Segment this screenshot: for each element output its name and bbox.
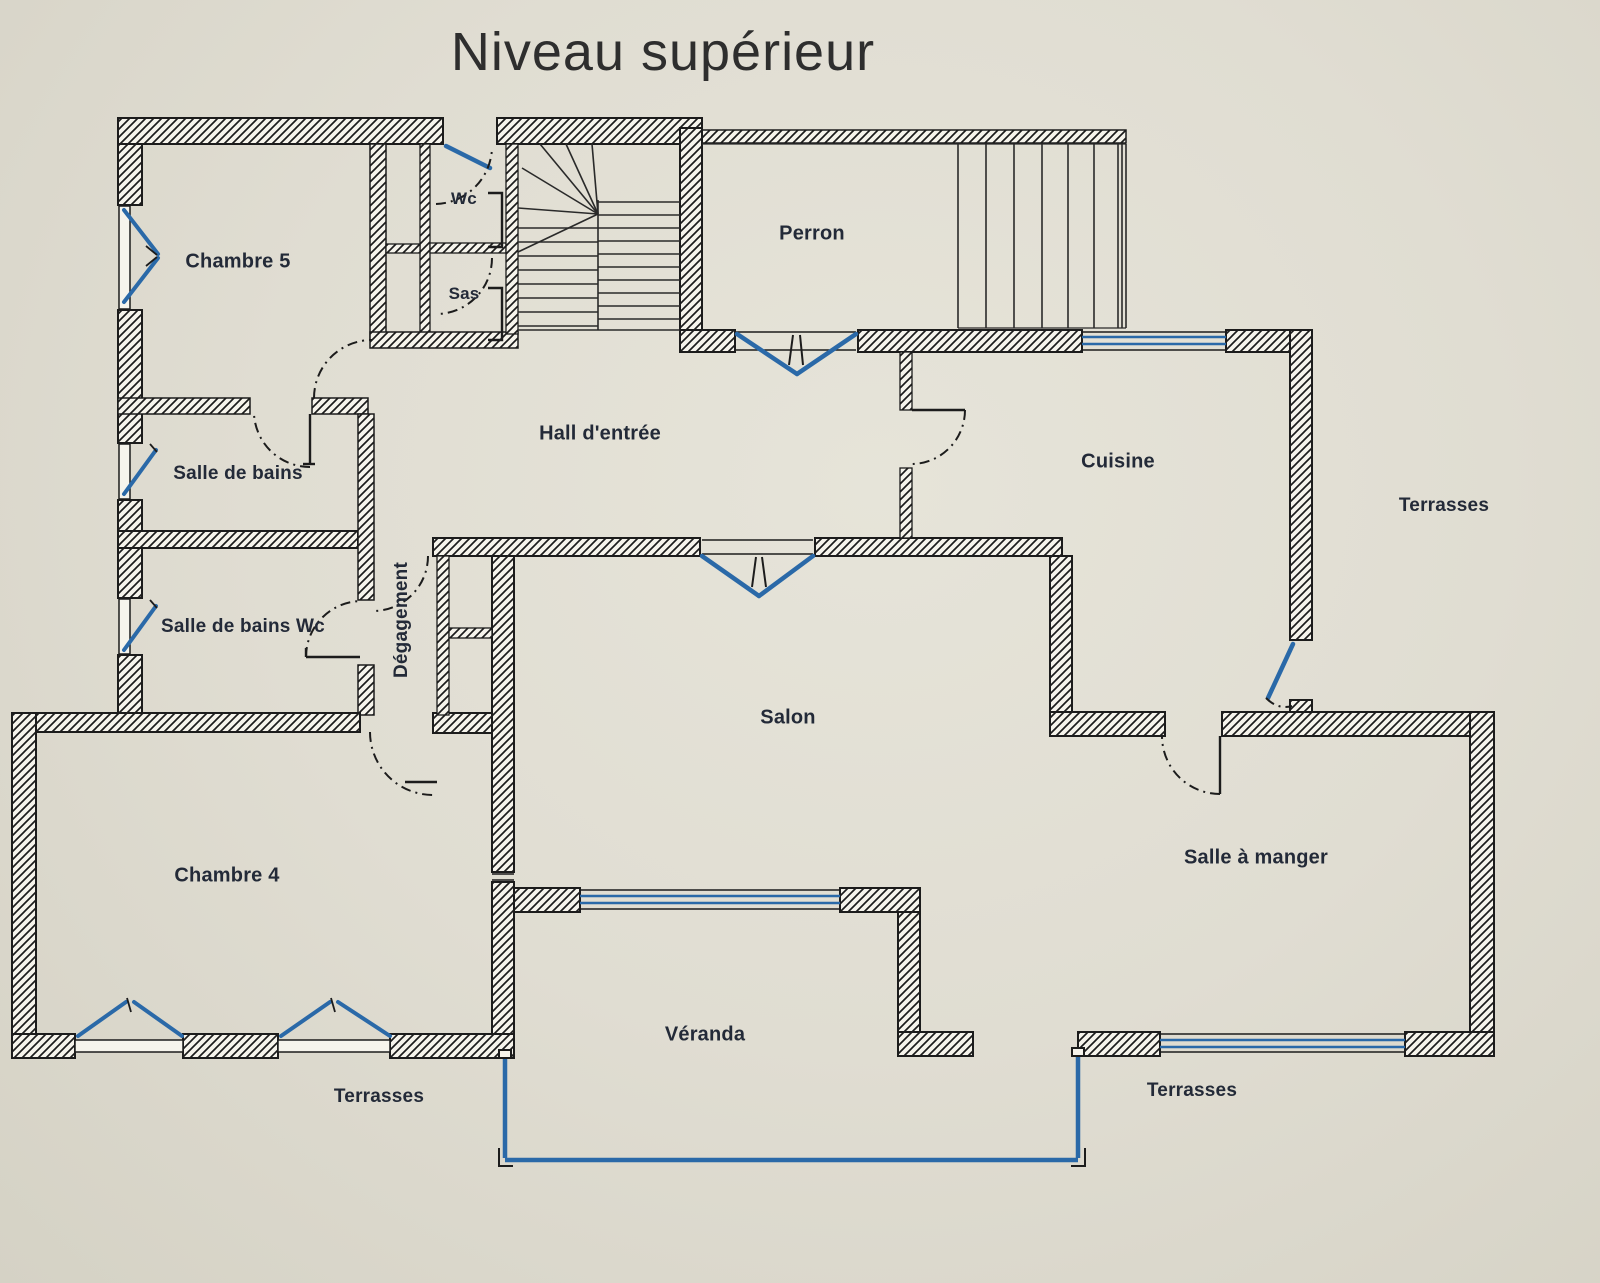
room-label-degagement: Dégagement bbox=[391, 562, 413, 678]
room-label-chambre-4: Chambre 4 bbox=[174, 865, 279, 888]
page-title: Niveau supérieur bbox=[451, 21, 875, 83]
floor-plan-page: Niveau supérieur Chambre 5 Wc Sas Perron… bbox=[0, 0, 1600, 1283]
perron-exterior-steps bbox=[702, 144, 1126, 328]
room-label-salle-a-manger: Salle à manger bbox=[1184, 847, 1328, 870]
room-label-salle-de-bains-wc: Salle de bains Wc bbox=[161, 616, 325, 638]
room-label-cuisine: Cuisine bbox=[1081, 451, 1155, 474]
room-label-hall-entree: Hall d'entrée bbox=[539, 423, 661, 446]
room-label-veranda: Véranda bbox=[665, 1024, 745, 1047]
room-label-sas: Sas bbox=[449, 284, 480, 304]
room-label-perron: Perron bbox=[779, 223, 845, 246]
area-label-terrasses-bottom-right: Terrasses bbox=[1147, 1080, 1237, 1102]
room-label-salle-de-bains: Salle de bains bbox=[173, 463, 303, 485]
doors bbox=[254, 146, 1293, 880]
room-label-chambre-5: Chambre 5 bbox=[185, 251, 290, 274]
area-label-terrasses-right: Terrasses bbox=[1399, 495, 1489, 517]
room-label-salon: Salon bbox=[760, 707, 815, 730]
veranda-glass-walls bbox=[499, 1048, 1085, 1166]
interior-staircase bbox=[518, 144, 680, 330]
floor-plan-drawing bbox=[0, 0, 1600, 1283]
area-label-terrasses-bottom-left: Terrasses bbox=[334, 1086, 424, 1108]
room-label-wc: Wc bbox=[451, 189, 477, 209]
